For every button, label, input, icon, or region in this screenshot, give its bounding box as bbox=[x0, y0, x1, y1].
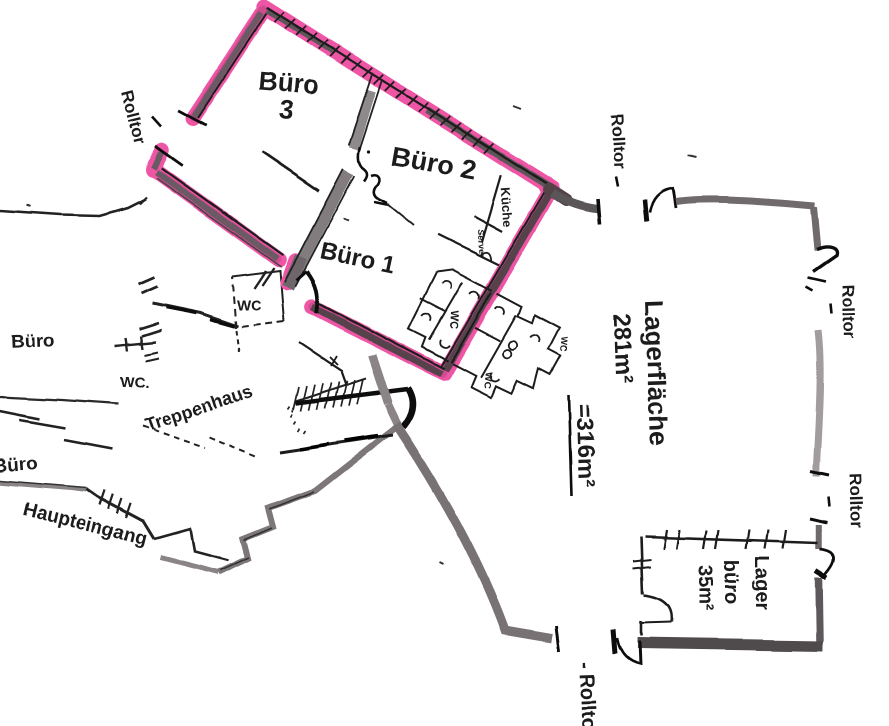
svg-text:Rolltor: Rolltor bbox=[846, 473, 867, 529]
svg-text:WC.: WC. bbox=[120, 374, 149, 391]
svg-text:Rolltor: Rolltor bbox=[838, 283, 859, 339]
svg-text:281m²: 281m² bbox=[608, 313, 637, 383]
svg-text:Rolltor: Rolltor bbox=[608, 114, 630, 170]
svg-text:WC: WC bbox=[447, 310, 460, 329]
svg-text:Lager: Lager bbox=[751, 556, 773, 611]
svg-text:Lagerfläche: Lagerfläche bbox=[638, 300, 673, 447]
svg-text:WC: WC bbox=[558, 337, 569, 353]
svg-text:Küche: Küche bbox=[498, 187, 516, 228]
svg-text:WC: WC bbox=[481, 371, 493, 388]
svg-text:Büro: Büro bbox=[10, 330, 55, 353]
svg-text:büro: büro bbox=[720, 560, 742, 604]
svg-text:WC: WC bbox=[237, 297, 262, 314]
svg-text:35m²: 35m² bbox=[694, 565, 716, 612]
svg-text:Büro: Büro bbox=[0, 453, 38, 477]
svg-text:=316m²: =316m² bbox=[570, 404, 600, 488]
svg-text:Server: Server bbox=[475, 229, 487, 258]
svg-text:- Rolltor: - Rolltor bbox=[575, 661, 600, 726]
svg-text:3: 3 bbox=[278, 93, 295, 124]
